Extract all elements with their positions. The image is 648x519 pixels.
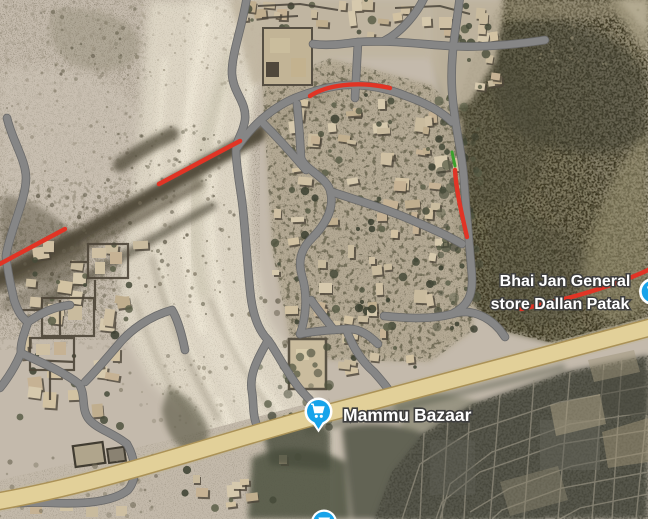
svg-text:store Dallan Patak: store Dallan Patak bbox=[491, 296, 630, 313]
svg-text:Mammu Bazaar: Mammu Bazaar bbox=[343, 405, 472, 425]
svg-text:Bhai Jan General: Bhai Jan General bbox=[500, 273, 631, 290]
